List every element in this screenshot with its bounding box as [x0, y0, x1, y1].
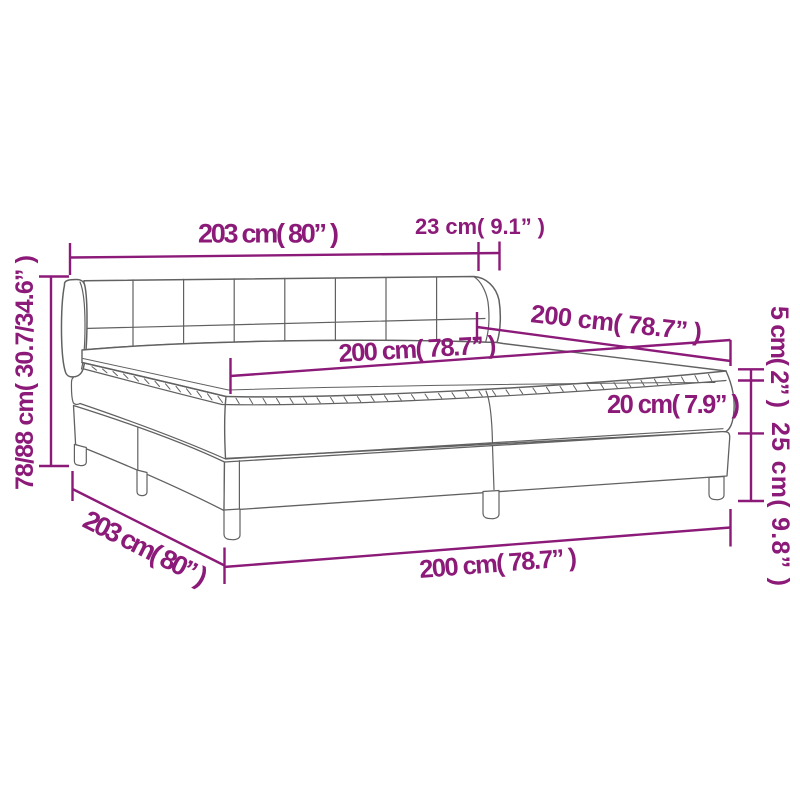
svg-text:203 cm( 80” ): 203 cm( 80” ) [198, 219, 339, 249]
svg-text:78/88 cm( 30.7/34.6” ): 78/88 cm( 30.7/34.6” ) [11, 255, 39, 490]
svg-text:20 cm( 7.9” ): 20 cm( 7.9” ) [607, 391, 740, 419]
svg-text:23 cm( 9.1” ): 23 cm( 9.1” ) [415, 214, 545, 239]
svg-text:25 cm( 9.8” ): 25 cm( 9.8” ) [766, 422, 794, 586]
svg-text:5 cm( 2” ): 5 cm( 2” ) [765, 306, 793, 408]
